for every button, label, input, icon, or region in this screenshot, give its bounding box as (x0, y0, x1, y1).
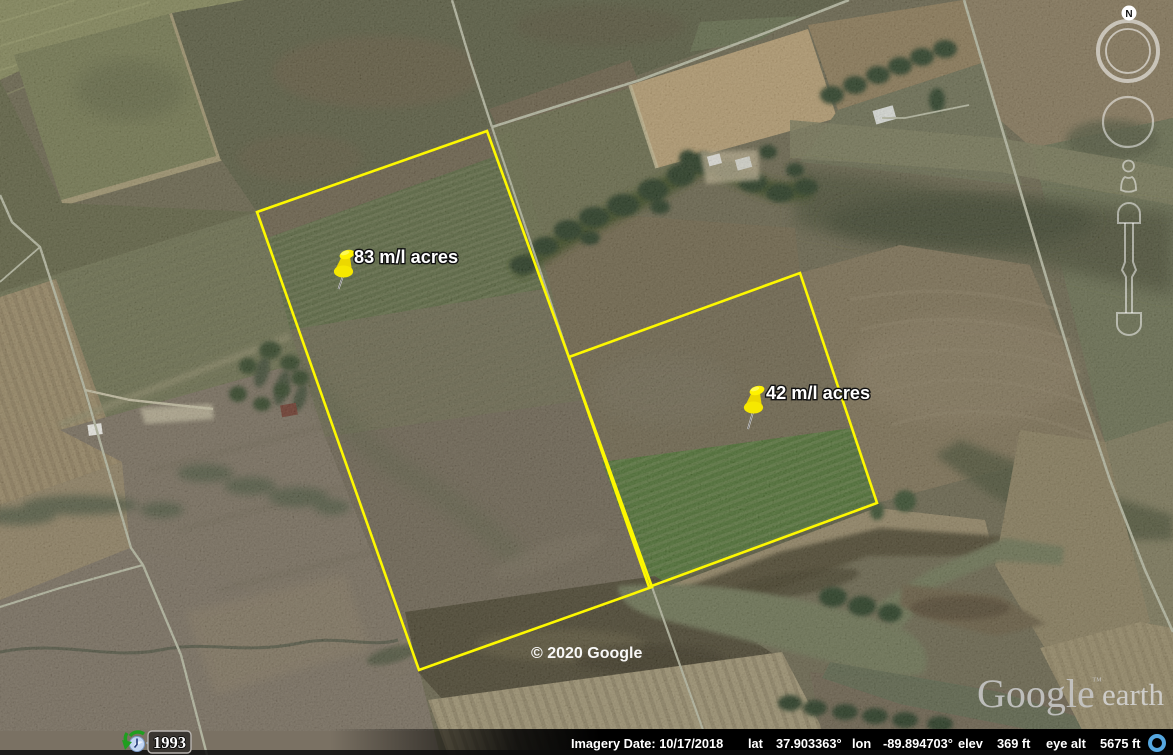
svg-text:5675 ft: 5675 ft (1100, 736, 1141, 751)
svg-text:earth: earth (1102, 677, 1164, 712)
svg-text:Google: Google (977, 671, 1095, 716)
svg-text:© 2020 Google: © 2020 Google (531, 645, 642, 662)
svg-text:83 m/l acres: 83 m/l acres (354, 247, 458, 267)
svg-text:™: ™ (1092, 676, 1102, 687)
svg-text:37.903363°: 37.903363° (776, 736, 842, 751)
svg-text:lat: lat (748, 736, 764, 751)
svg-text:eye alt: eye alt (1046, 736, 1087, 751)
svg-text:Imagery Date: 10/17/2018: Imagery Date: 10/17/2018 (571, 736, 723, 751)
svg-text:-89.894703°: -89.894703° (883, 736, 953, 751)
svg-text:369 ft: 369 ft (997, 736, 1031, 751)
svg-text:1993: 1993 (153, 733, 186, 752)
svg-text:elev: elev (958, 736, 984, 751)
svg-text:42 m/l acres: 42 m/l acres (766, 383, 870, 403)
svg-text:N: N (1125, 9, 1132, 20)
svg-text:lon: lon (852, 736, 871, 751)
